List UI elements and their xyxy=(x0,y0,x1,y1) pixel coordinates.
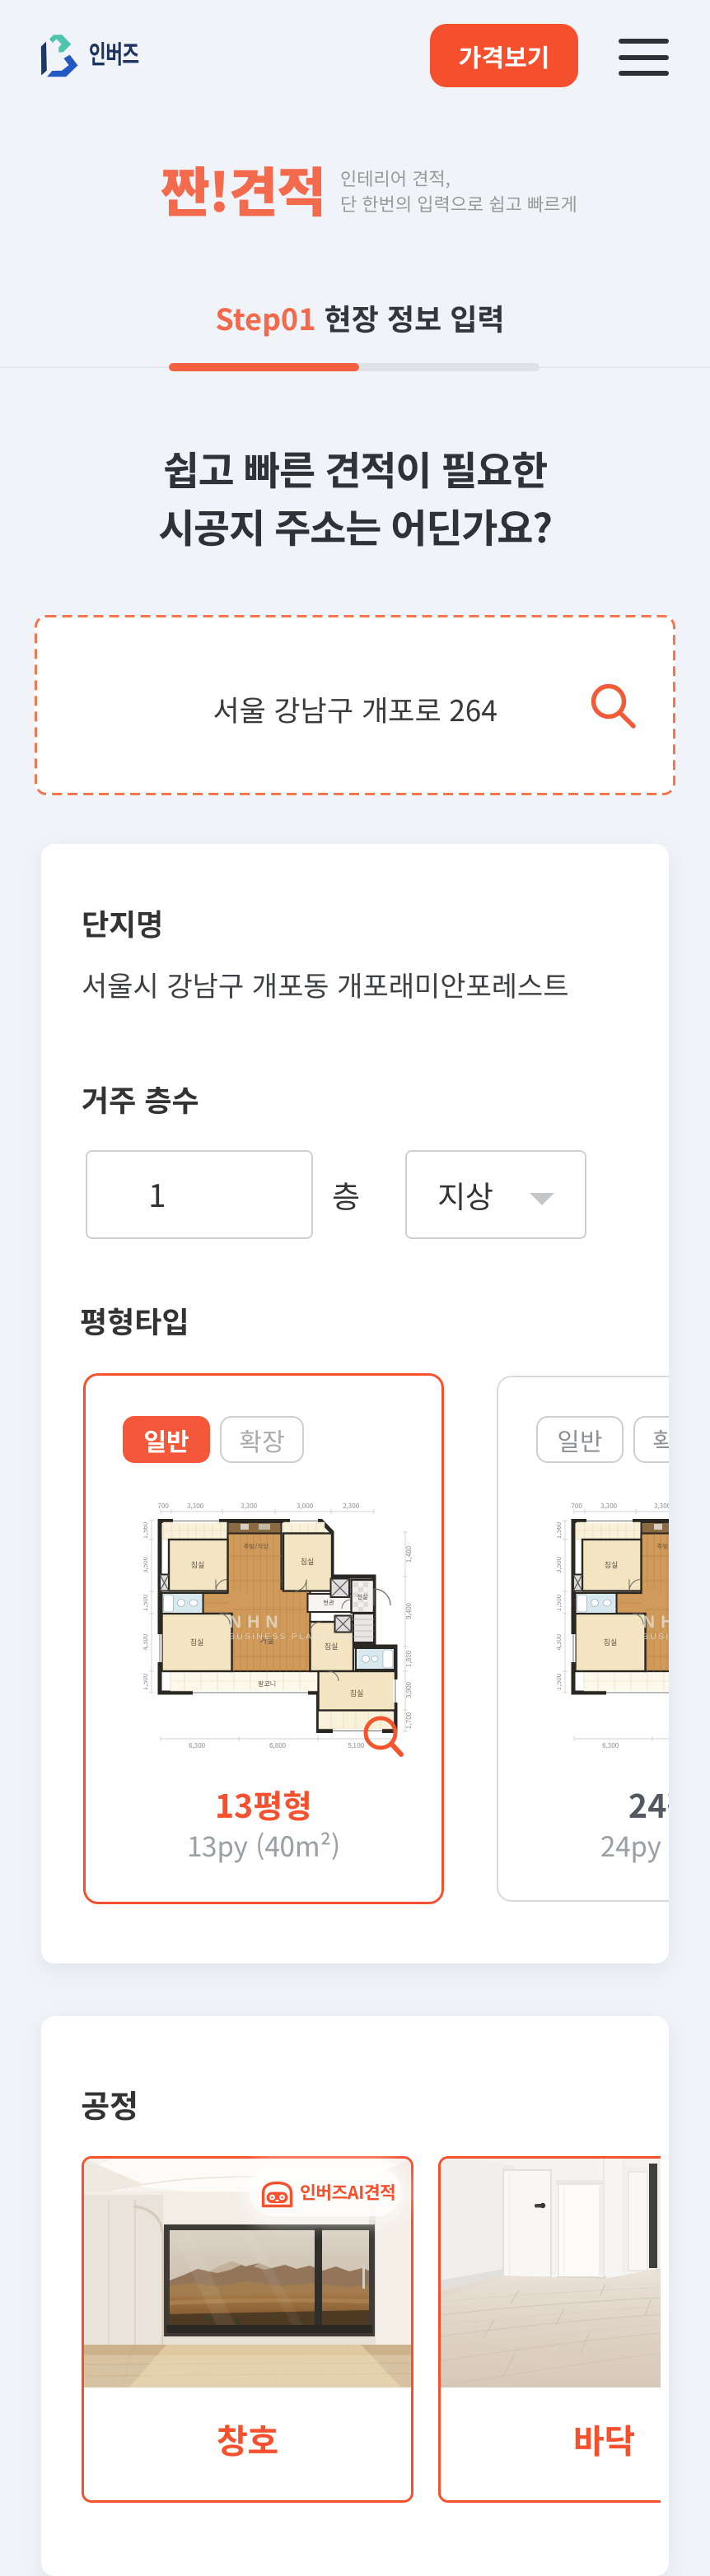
svg-text:주방/식당: 주방/식당 xyxy=(244,1542,269,1551)
svg-text:1,500: 1,500 xyxy=(143,1595,150,1611)
svg-text:현관: 현관 xyxy=(324,1599,334,1607)
svg-text:1,560: 1,560 xyxy=(143,1522,150,1539)
svg-text:700: 700 xyxy=(570,1502,582,1511)
svg-text:3,900: 3,900 xyxy=(404,1682,413,1698)
svg-text:700: 700 xyxy=(156,1502,168,1511)
svg-text:1,700: 1,700 xyxy=(404,1712,413,1729)
svg-text:3,300: 3,300 xyxy=(654,1502,669,1511)
svg-text:BUSINESS PLATFORM: BUSINESS PLATFORM xyxy=(642,1632,669,1642)
svg-text:발코니: 발코니 xyxy=(258,1679,276,1689)
svg-text:1,500: 1,500 xyxy=(143,1674,150,1690)
svg-text:2,300: 2,300 xyxy=(343,1502,359,1511)
svg-text:3,300: 3,300 xyxy=(187,1502,203,1511)
svg-text:9,400: 9,400 xyxy=(404,1603,413,1619)
svg-text:주방/식당: 주방/식당 xyxy=(657,1542,669,1551)
svg-text:3,500: 3,500 xyxy=(557,1557,563,1573)
svg-text:4,300: 4,300 xyxy=(557,1634,563,1651)
svg-text:침실: 침실 xyxy=(301,1556,315,1567)
svg-text:침실: 침실 xyxy=(190,1637,204,1647)
svg-text:5,100: 5,100 xyxy=(348,1741,364,1750)
svg-text:4,300: 4,300 xyxy=(143,1634,150,1651)
svg-text:BUSINESS PLATFORM: BUSINESS PLATFORM xyxy=(229,1632,353,1642)
svg-text:3,300: 3,300 xyxy=(241,1502,257,1511)
svg-text:1,560: 1,560 xyxy=(557,1522,563,1539)
svg-text:침실: 침실 xyxy=(191,1559,205,1570)
svg-text:침실: 침실 xyxy=(325,1641,339,1651)
svg-text:1,800: 1,800 xyxy=(404,1651,413,1667)
svg-text:1,500: 1,500 xyxy=(557,1674,563,1690)
svg-text:3,000: 3,000 xyxy=(297,1502,313,1511)
svg-text:침실: 침실 xyxy=(350,1688,364,1698)
svg-text:전실: 전실 xyxy=(357,1593,368,1601)
svg-text:침실: 침실 xyxy=(605,1559,619,1570)
svg-text:6,300: 6,300 xyxy=(189,1741,205,1750)
svg-text:1,500: 1,500 xyxy=(557,1595,563,1611)
svg-text:침실: 침실 xyxy=(604,1637,618,1647)
svg-text:NHN: NHN xyxy=(229,1613,284,1632)
svg-text:3,500: 3,500 xyxy=(143,1557,150,1573)
svg-text:6,800: 6,800 xyxy=(269,1741,286,1750)
svg-text:6,300: 6,300 xyxy=(602,1741,619,1750)
svg-text:3,300: 3,300 xyxy=(600,1502,617,1511)
svg-text:1,480: 1,480 xyxy=(404,1546,413,1563)
svg-text:NHN: NHN xyxy=(642,1613,669,1632)
